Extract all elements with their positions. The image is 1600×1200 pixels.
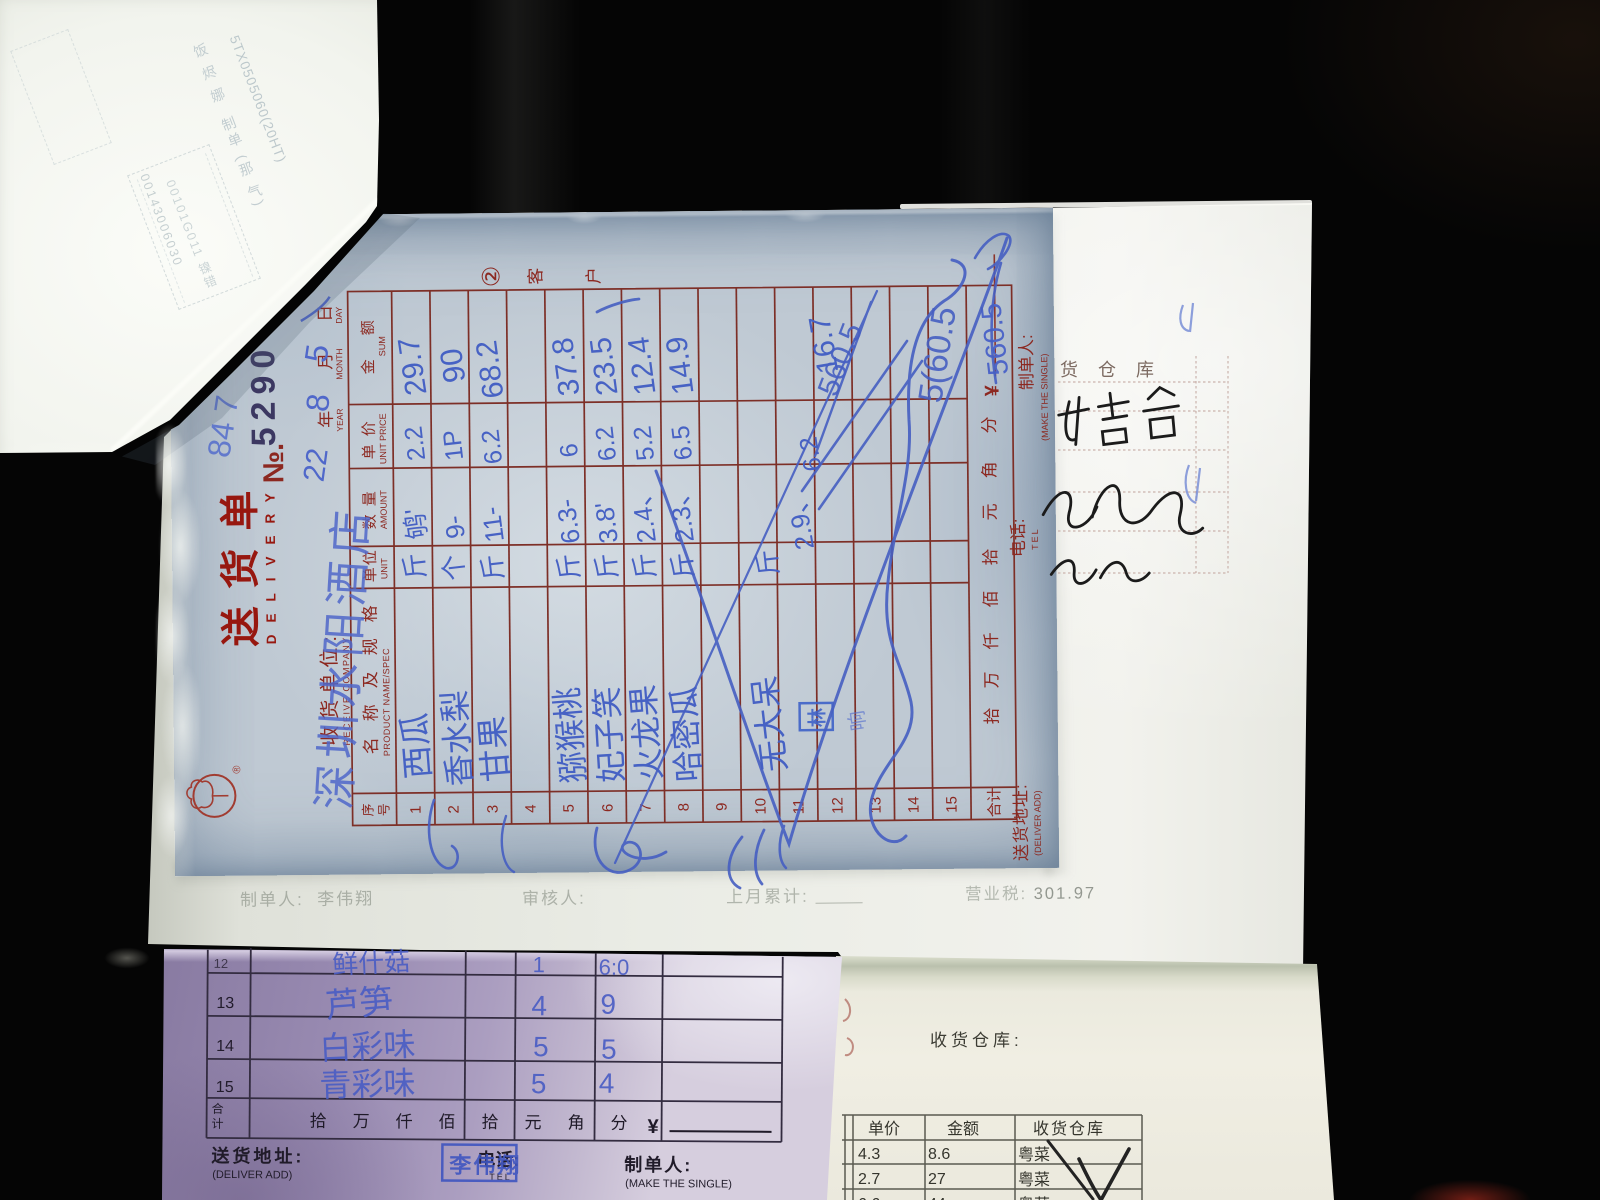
- svg-text:5(60.5: 5(60.5: [911, 304, 964, 405]
- svg-text:560.5: 560.5: [812, 319, 870, 401]
